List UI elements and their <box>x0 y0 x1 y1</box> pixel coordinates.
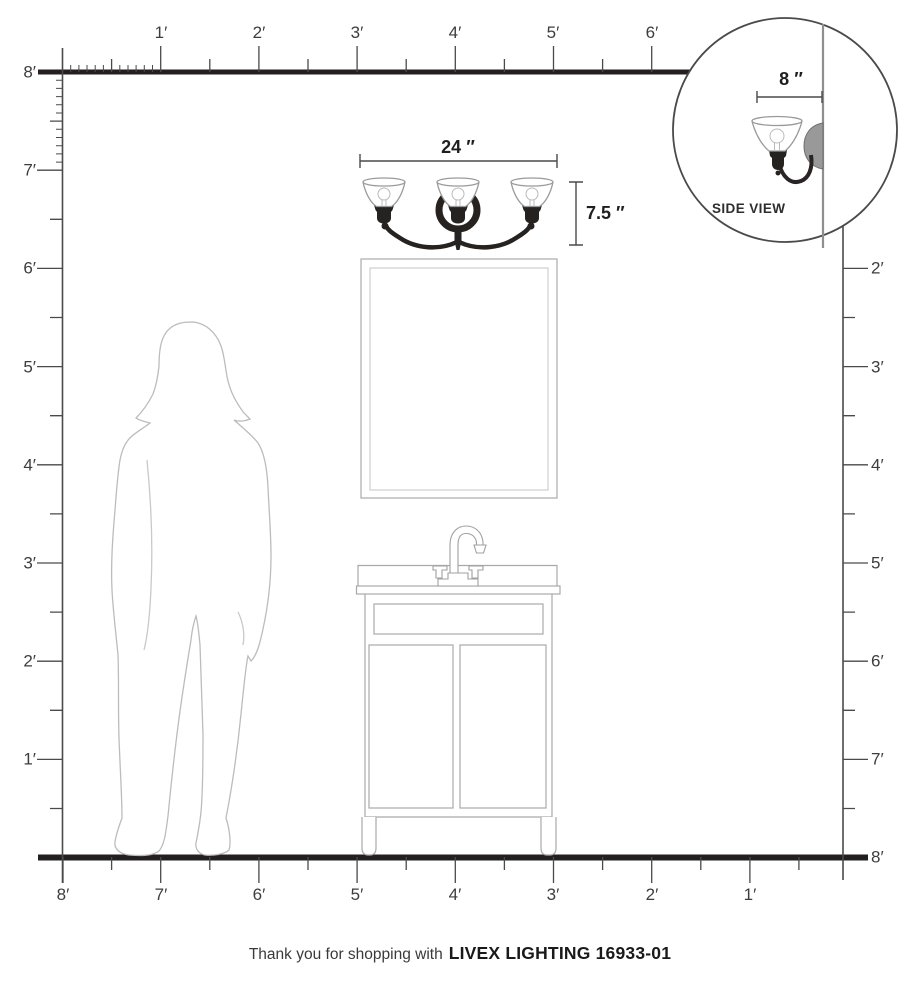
ruler-left-label-2ft: 2′ <box>23 653 36 670</box>
side-view-label: SIDE VIEW <box>712 201 785 216</box>
dimension-diagram: 1′ 2′ 3′ 4′ 5′ 6′ 8′ 7′ 6′ 5′ 4′ 3′ 2′ 1… <box>0 0 920 990</box>
ruler-right-label-2ft: 2′ <box>871 260 884 277</box>
ruler-left-label-8ft: 8′ <box>23 64 36 81</box>
vanity-door-right <box>460 645 546 808</box>
faucet-handle-left <box>433 566 447 578</box>
ruler-left-label-3ft: 3′ <box>23 555 36 572</box>
vanity-drawer <box>374 604 543 634</box>
ruler-top-label-2ft: 2′ <box>253 24 266 41</box>
fixture-socket-center <box>448 205 468 224</box>
vanity-leg-left <box>362 817 376 855</box>
height-dimension-value: 7.5 ″ <box>586 204 625 222</box>
glass-shade-center-rim <box>437 178 479 186</box>
ruler-left-foot-ticks <box>37 170 63 759</box>
ruler-bottom-label-5ft: 5′ <box>351 886 364 903</box>
vanity-door-left <box>369 645 453 808</box>
fixture-shades <box>363 178 553 207</box>
ruler-left-label-4ft: 4′ <box>23 457 36 474</box>
ruler-bottom-label-8ft: 8′ <box>57 886 70 903</box>
ruler-right-label-4ft: 4′ <box>871 457 884 474</box>
width-dimension-value: 24 ″ <box>441 138 475 156</box>
ruler-top-label-1ft: 1′ <box>155 24 168 41</box>
caption-brand-model: LIVEX LIGHTING 16933-01 <box>449 943 671 963</box>
fixture-socket-left <box>374 205 394 224</box>
ruler-right-label-6ft: 6′ <box>871 653 884 670</box>
caption-prefix: Thank you for shopping with <box>249 946 443 963</box>
faucet <box>433 526 486 586</box>
ruler-bottom-label-3ft: 3′ <box>547 886 560 903</box>
glass-shade-right-rim <box>511 178 553 186</box>
vanity-cabinet <box>357 566 561 856</box>
ruler-left-label-7ft: 7′ <box>23 162 36 179</box>
ruler-top-label-5ft: 5′ <box>547 24 560 41</box>
ruler-right-label-7ft: 7′ <box>871 751 884 768</box>
ruler-bottom-label-6ft: 6′ <box>253 886 266 903</box>
faucet-aerator <box>474 545 486 553</box>
vanity-light-front <box>363 178 553 250</box>
height-dimension-line <box>569 182 583 245</box>
ruler-bottom-label-2ft: 2′ <box>646 886 659 903</box>
fixture-ball-left <box>382 223 389 230</box>
mirror <box>361 259 557 498</box>
ruler-right-label-8ft: 8′ <box>871 849 884 866</box>
depth-dimension-value: 8 ″ <box>779 70 803 88</box>
ruler-bottom-label-4ft: 4′ <box>449 886 462 903</box>
sconce-finial <box>776 171 781 176</box>
ruler-bottom-label-7ft: 7′ <box>155 886 168 903</box>
ruler-left-label-6ft: 6′ <box>23 260 36 277</box>
sconce-shade-rim <box>752 117 802 126</box>
ruler-top-label-4ft: 4′ <box>449 24 462 41</box>
fixture-socket-right <box>522 205 542 224</box>
ruler-left-label-1ft: 1′ <box>23 751 36 768</box>
ruler-right-label-3ft: 3′ <box>871 359 884 376</box>
ruler-top-label-3ft: 3′ <box>351 24 364 41</box>
vanity-body <box>365 594 552 817</box>
floor-line <box>38 855 868 861</box>
mirror-inner-frame <box>370 268 548 490</box>
ruler-bottom-label-1ft: 1′ <box>744 886 757 903</box>
vanity-leg-right <box>541 817 556 855</box>
fixture-ball-right <box>528 223 535 230</box>
caption: Thank you for shopping withLIVEX LIGHTIN… <box>0 943 920 964</box>
ruler-left-label-5ft: 5′ <box>23 359 36 376</box>
person-outline <box>112 322 271 856</box>
vanity-countertop <box>357 586 561 594</box>
glass-shade-left-rim <box>363 178 405 186</box>
ruler-top-label-6ft: 6′ <box>646 24 659 41</box>
person-silhouette <box>112 322 271 856</box>
faucet-handle-right <box>469 566 483 578</box>
ruler-right-label-5ft: 5′ <box>871 555 884 572</box>
